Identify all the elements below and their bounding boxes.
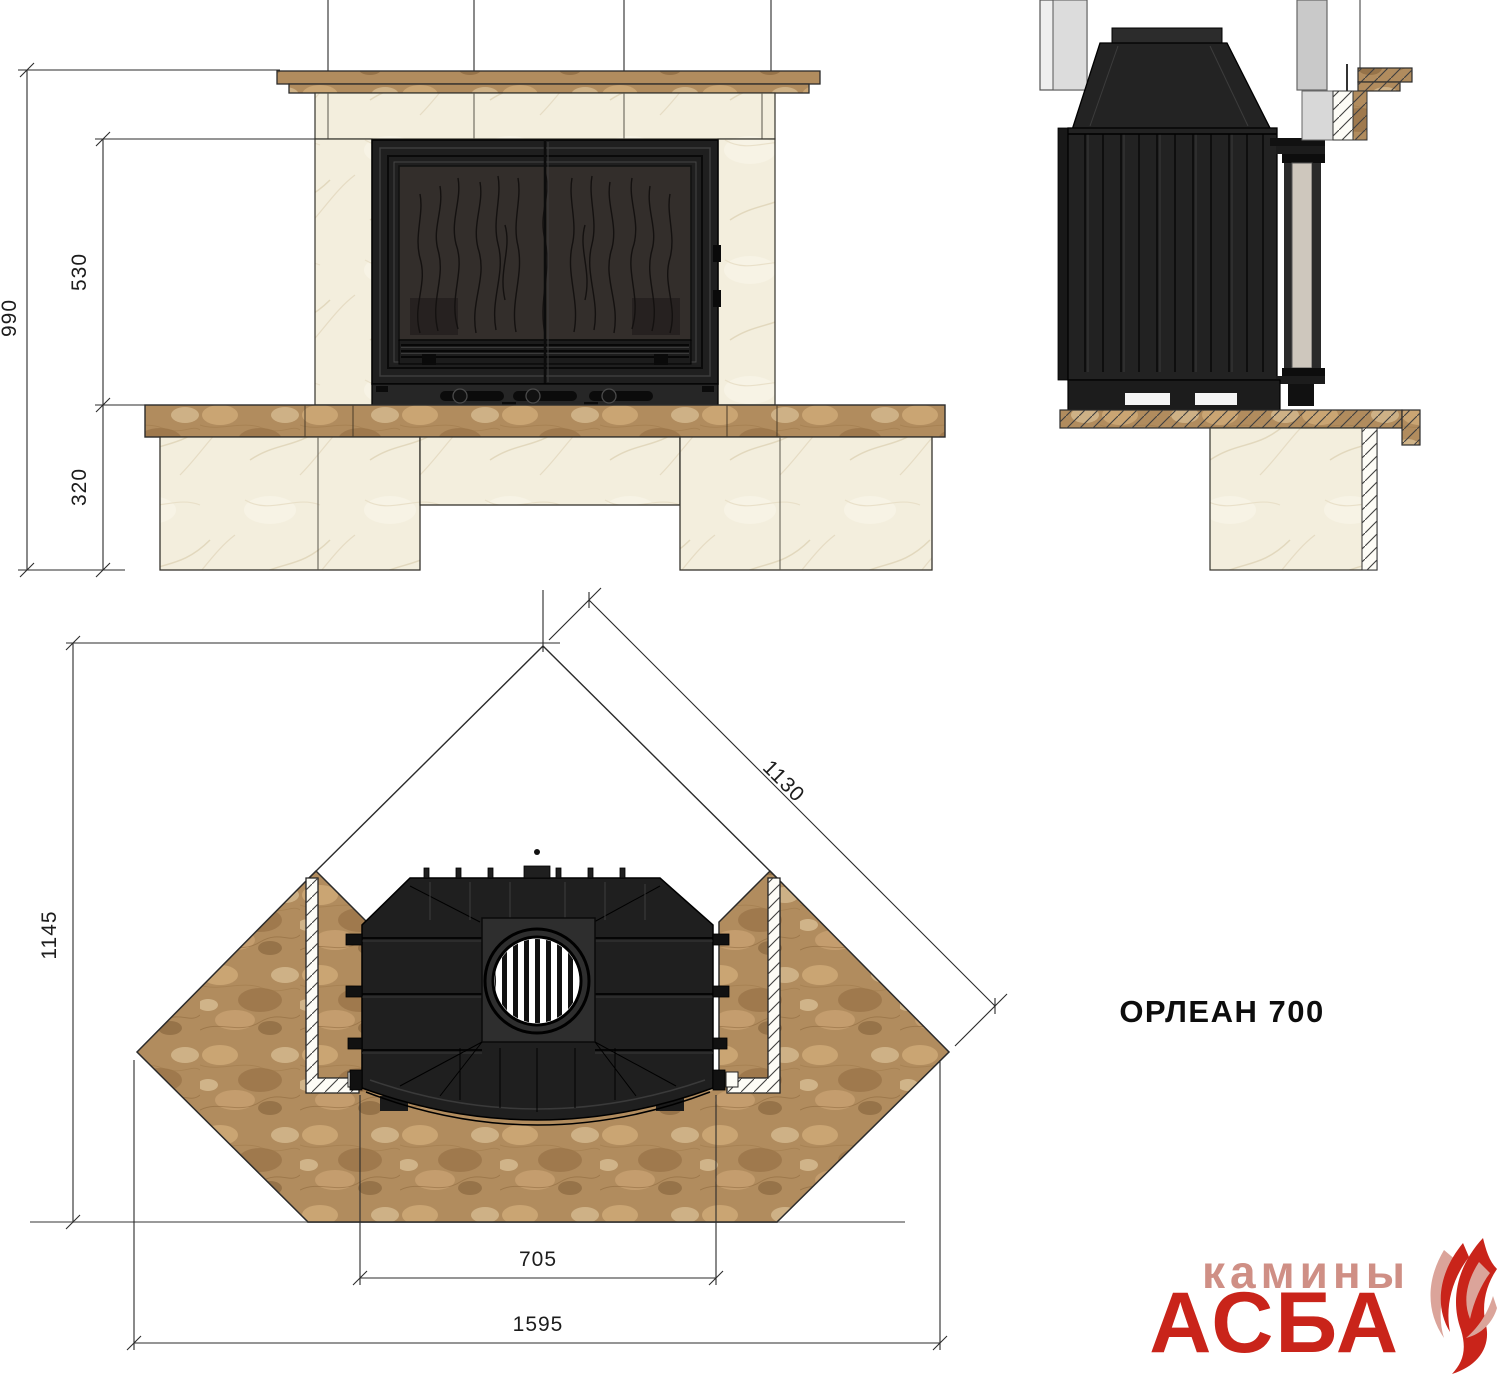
- center-bridge: [420, 437, 680, 505]
- lintel-band: [315, 93, 775, 139]
- right-pedestal: [680, 437, 932, 570]
- front-wall-lines: [328, 0, 771, 71]
- side-glass: [1292, 163, 1312, 368]
- model-title: ОРЛЕАН 700: [1119, 994, 1324, 1029]
- front-view: 990 530 320: [0, 0, 945, 577]
- dim-wall-length: 1130: [758, 756, 809, 807]
- side-view: [1040, 0, 1420, 570]
- brand-logo: камины АСБА: [1149, 1238, 1497, 1374]
- logo-brand: АСБА: [1149, 1275, 1400, 1371]
- dim-depth: 1145: [38, 910, 61, 959]
- plinth: [160, 437, 932, 570]
- left-pedestal: [160, 437, 420, 570]
- drawing-canvas: 990 530 320: [0, 0, 1500, 1376]
- hearth-slab: [145, 405, 945, 437]
- firebox-front: [372, 140, 721, 408]
- plan-view: 1145 1130 705 1595: [30, 588, 1007, 1350]
- dim-inner-width: 705: [519, 1248, 557, 1271]
- dim-total-height: 990: [0, 299, 21, 337]
- mantel-shelf: [277, 71, 820, 93]
- technical-drawing-page: 990 530 320: [0, 0, 1500, 1376]
- door-handle: [713, 245, 721, 262]
- flame-icon: [1431, 1238, 1498, 1374]
- stove-section: [1058, 28, 1325, 410]
- flue-pipe: [1297, 0, 1327, 90]
- dim-overall-width: 1595: [513, 1313, 564, 1336]
- dim-opening-height: 530: [68, 253, 91, 291]
- side-wall-section: [1302, 91, 1367, 140]
- firebox-plan: [346, 849, 729, 1125]
- side-shelf-section: [1358, 68, 1412, 91]
- right-leg: [718, 139, 775, 405]
- left-leg: [315, 139, 372, 405]
- dim-hearth-height: 320: [68, 468, 91, 506]
- side-plinth-section: [1210, 428, 1377, 570]
